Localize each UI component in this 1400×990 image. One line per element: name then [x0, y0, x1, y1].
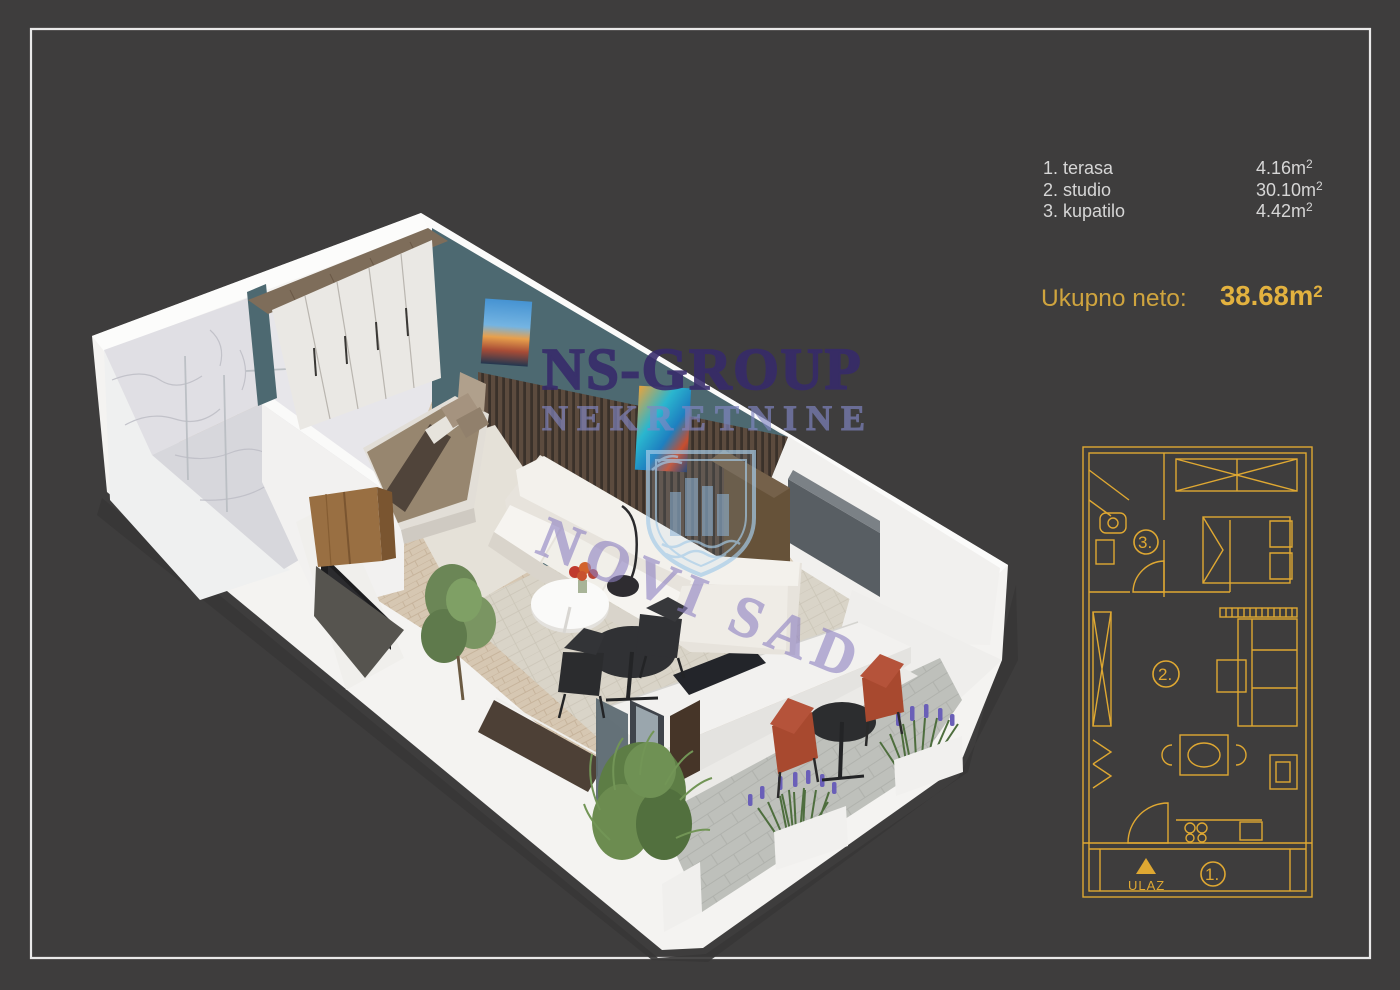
svg-text:38.68m2: 38.68m2: [1220, 280, 1323, 311]
svg-text:2.: 2.: [1158, 665, 1172, 684]
svg-text:NEKRETNINE: NEKRETNINE: [542, 398, 874, 438]
svg-text:3.: 3.: [1138, 533, 1152, 552]
svg-text:2. studio: 2. studio: [1043, 180, 1111, 200]
svg-text:4.16m2: 4.16m2: [1256, 157, 1313, 178]
svg-text:1.: 1.: [1205, 865, 1219, 884]
svg-text:3. kupatilo: 3. kupatilo: [1043, 201, 1125, 221]
svg-text:NS-GROUP: NS-GROUP: [542, 336, 862, 402]
svg-text:4.42m2: 4.42m2: [1256, 200, 1313, 221]
svg-text:ULAZ: ULAZ: [1128, 878, 1165, 893]
svg-text:30.10m2: 30.10m2: [1256, 179, 1323, 200]
svg-text:1. terasa: 1. terasa: [1043, 158, 1114, 178]
svg-text:Ukupno neto:: Ukupno neto:: [1041, 285, 1187, 312]
